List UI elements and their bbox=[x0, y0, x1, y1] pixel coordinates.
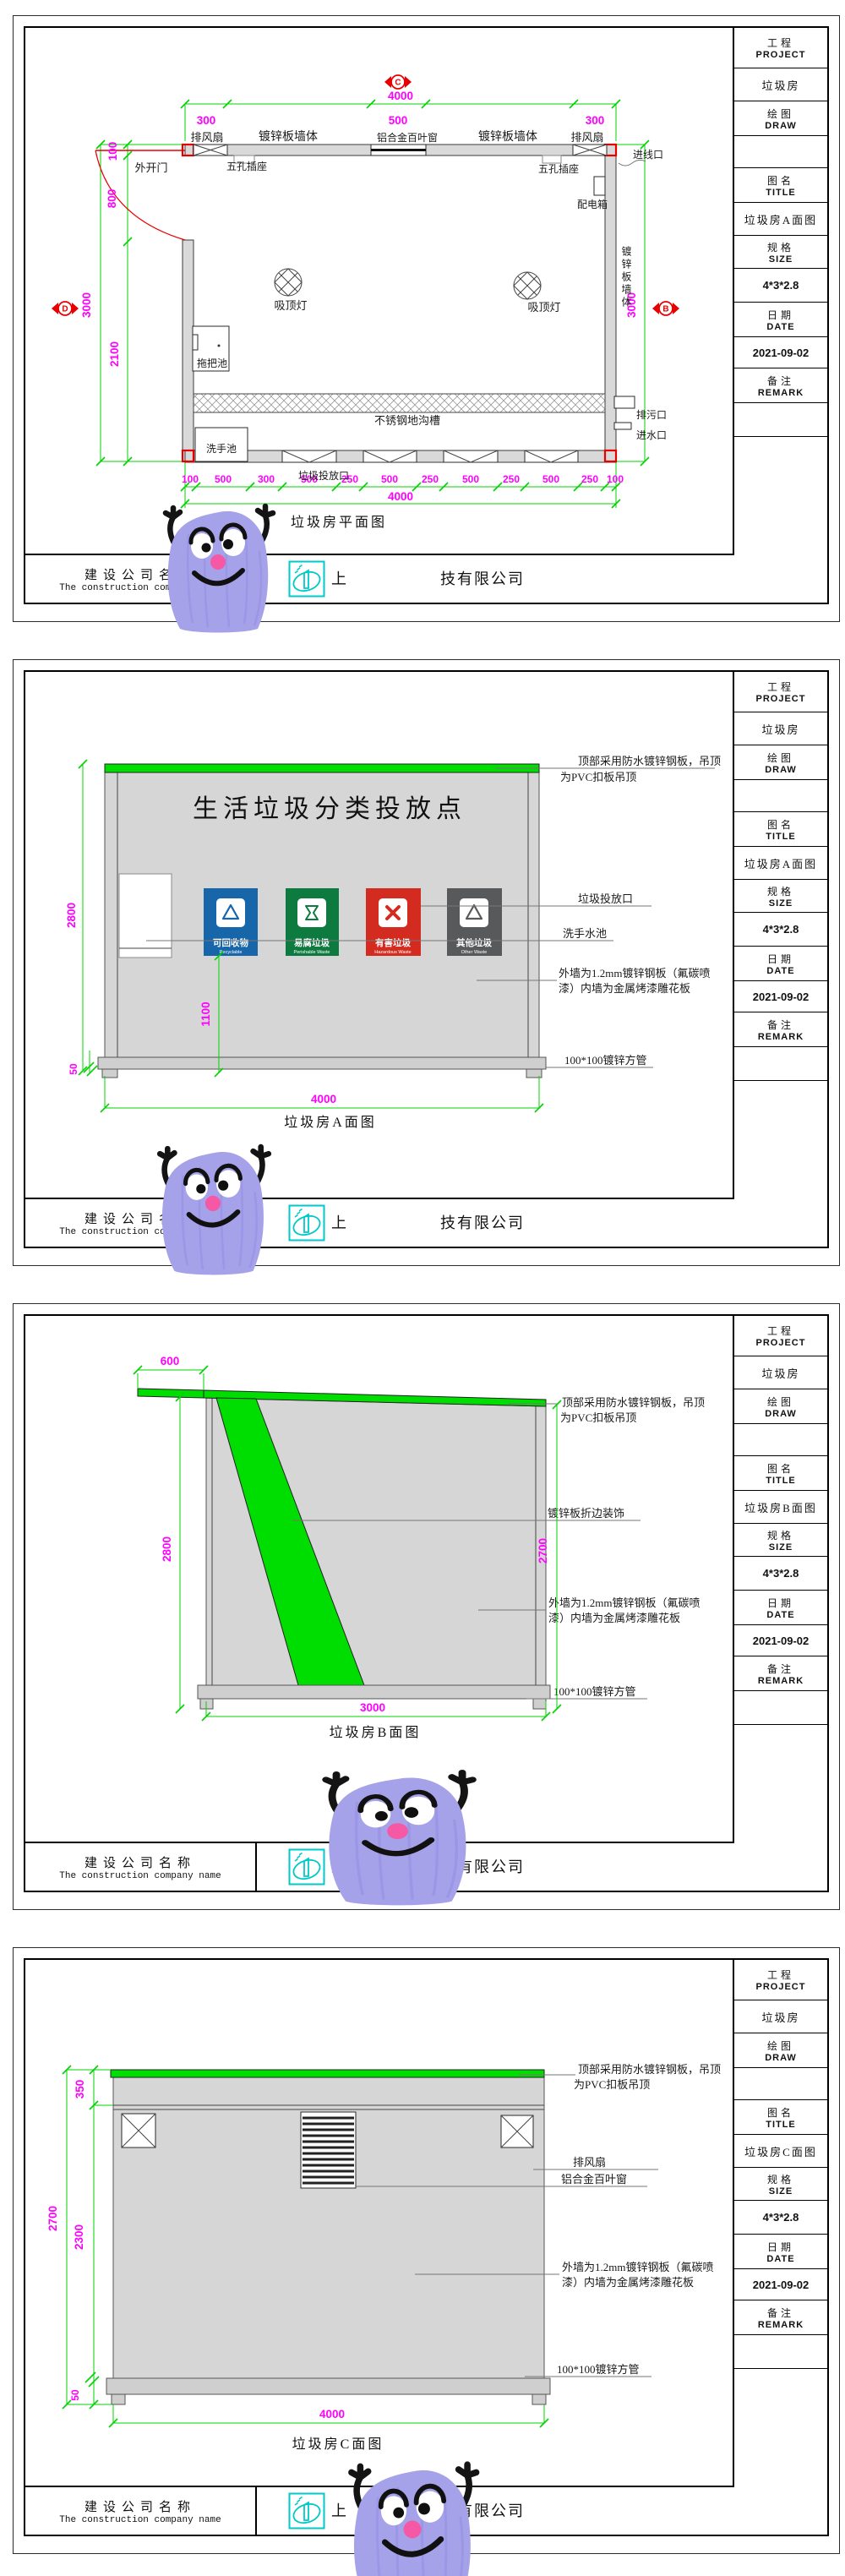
svg-text:配电箱: 配电箱 bbox=[577, 198, 608, 210]
svg-text:拖把池: 拖把池 bbox=[197, 357, 227, 369]
bin-hazardous: 有害垃圾 Hazardous Waste bbox=[366, 888, 421, 956]
ceiling-lamp-icon bbox=[275, 269, 541, 299]
svg-text:五孔插座: 五孔插座 bbox=[538, 162, 579, 175]
axis-marker-b: B bbox=[652, 302, 679, 315]
sheet-2-elevation-a: 工程PROJECT 垃圾房 绘图DRAW 图名TITLE 垃圾房A面图 规格SI… bbox=[13, 659, 840, 1266]
plan-drawing: C D B 4000 300 500 300 100 800 2100 3000… bbox=[14, 16, 839, 621]
louver-window-icon bbox=[301, 2112, 356, 2188]
svg-text:D: D bbox=[62, 305, 68, 314]
svg-text:漆）内墙为金属烤漆雕花板: 漆）内墙为金属烤漆雕花板 bbox=[562, 2276, 694, 2289]
svg-text:顶部采用防水镀锌钢板，吊顶: 顶部采用防水镀锌钢板，吊顶 bbox=[578, 755, 721, 767]
svg-text:不锈钢地沟槽: 不锈钢地沟槽 bbox=[374, 414, 440, 427]
svg-text:4000: 4000 bbox=[319, 2408, 345, 2420]
mascot-sticker bbox=[336, 2458, 488, 2576]
svg-text:顶部采用防水镀锌钢板，吊顶: 顶部采用防水镀锌钢板，吊顶 bbox=[562, 1396, 705, 1409]
svg-text:漆）内墙为金属烤漆雕花板: 漆）内墙为金属烤漆雕花板 bbox=[548, 1612, 680, 1624]
svg-text:3000: 3000 bbox=[360, 1701, 385, 1714]
svg-text:Hazardous Waste: Hazardous Waste bbox=[374, 950, 412, 955]
annotations: 顶部采用防水镀锌钢板，吊顶 为PVC扣板吊顶 排风扇 铝合金百叶窗 外墙为1.2… bbox=[557, 2063, 721, 2376]
svg-text:600: 600 bbox=[161, 1355, 180, 1367]
svg-text:2700: 2700 bbox=[537, 1538, 549, 1564]
sheet-1-plan: 工程PROJECT 垃圾房 绘图DRAW 图名TITLE 垃圾房A面图 规格SI… bbox=[13, 15, 840, 622]
annotations: 顶部采用防水镀锌钢板，吊顶 为PVC扣板吊顶 镀锌板折边装饰 外墙为1.2mm镀… bbox=[548, 1396, 705, 1698]
svg-text:C: C bbox=[395, 79, 401, 88]
svg-text:其他垃圾: 其他垃圾 bbox=[456, 937, 492, 948]
svg-text:2800: 2800 bbox=[161, 1536, 173, 1562]
svg-text:1100: 1100 bbox=[199, 1001, 212, 1026]
base-strip bbox=[98, 1057, 546, 1069]
svg-text:铝合金百叶窗: 铝合金百叶窗 bbox=[561, 2173, 627, 2186]
drawing-caption: 垃圾房B面图 bbox=[330, 1725, 422, 1740]
floor-trench bbox=[194, 394, 605, 412]
svg-text:顶部采用防水镀锌钢板，吊顶: 顶部采用防水镀锌钢板，吊顶 bbox=[578, 2063, 721, 2076]
svg-text:800: 800 bbox=[106, 189, 118, 209]
axis-marker-d: D bbox=[52, 302, 79, 315]
svg-text:为PVC扣板吊顶: 为PVC扣板吊顶 bbox=[560, 771, 636, 783]
svg-text:排风扇: 排风扇 bbox=[190, 131, 223, 144]
svg-text:3000: 3000 bbox=[80, 292, 93, 318]
drawing-caption: 垃圾房C面图 bbox=[292, 2437, 384, 2452]
svg-text:250: 250 bbox=[503, 473, 520, 485]
svg-text:进线口: 进线口 bbox=[633, 149, 663, 161]
elevation-a-drawing: 生活垃圾分类投放点 可回收物 Recyclable bbox=[14, 660, 839, 1265]
svg-text:洗手水池: 洗手水池 bbox=[563, 927, 607, 940]
svg-text:五孔插座: 五孔插座 bbox=[226, 160, 267, 172]
sign-text: 生活垃圾分类投放点 bbox=[193, 795, 466, 823]
svg-text:4000: 4000 bbox=[388, 490, 413, 503]
svg-text:500: 500 bbox=[542, 473, 559, 485]
svg-text:2300: 2300 bbox=[73, 2224, 85, 2250]
drain-symbols bbox=[614, 396, 635, 429]
svg-text:350: 350 bbox=[74, 2080, 86, 2099]
svg-text:300: 300 bbox=[586, 114, 605, 127]
svg-text:500: 500 bbox=[381, 473, 398, 485]
svg-text:500: 500 bbox=[462, 473, 479, 485]
sink-box bbox=[119, 874, 172, 958]
drawing-caption: 垃圾房A面图 bbox=[284, 1115, 377, 1130]
svg-text:2700: 2700 bbox=[46, 2206, 59, 2231]
svg-text:100*100镀锌方管: 100*100镀锌方管 bbox=[553, 1685, 636, 1698]
annotations: 顶部采用防水镀锌钢板，吊顶 为PVC扣板吊顶 垃圾投放口 洗手水池 外墙为1.2… bbox=[559, 755, 721, 1067]
drawing-set-page: 工程PROJECT 垃圾房 绘图DRAW 图名TITLE 垃圾房A面图 规格SI… bbox=[0, 0, 845, 2576]
mascot-sticker bbox=[155, 500, 281, 636]
foot-right bbox=[533, 1699, 546, 1709]
svg-text:300: 300 bbox=[258, 473, 275, 485]
drawing-caption: 垃圾房平面图 bbox=[291, 515, 387, 530]
svg-text:外墙为1.2mm镀锌钢板（氟碳喷: 外墙为1.2mm镀锌钢板（氟碳喷 bbox=[548, 1596, 700, 1609]
svg-text:吸顶灯: 吸顶灯 bbox=[274, 299, 307, 312]
svg-text:100: 100 bbox=[607, 473, 624, 485]
svg-text:为PVC扣板吊顶: 为PVC扣板吊顶 bbox=[574, 2078, 650, 2091]
axis-marker-c: C bbox=[384, 75, 412, 89]
svg-text:垃圾投放口: 垃圾投放口 bbox=[578, 892, 633, 905]
roof-strip bbox=[105, 764, 539, 772]
bin-recyclable: 可回收物 Recyclable bbox=[204, 888, 258, 956]
svg-text:外墙为1.2mm镀锌钢板（氟碳喷: 外墙为1.2mm镀锌钢板（氟碳喷 bbox=[559, 967, 710, 980]
svg-text:易腐垃圾: 易腐垃圾 bbox=[294, 937, 330, 948]
svg-text:2100: 2100 bbox=[108, 341, 121, 367]
svg-text:100*100镀锌方管: 100*100镀锌方管 bbox=[564, 1054, 647, 1067]
svg-text:排污口: 排污口 bbox=[636, 409, 667, 421]
svg-text:4000: 4000 bbox=[388, 90, 413, 102]
svg-text:排风扇: 排风扇 bbox=[570, 131, 603, 144]
right-wall-label: 镀锌板墙体 bbox=[619, 246, 634, 346]
svg-text:漆）内墙为金属烤漆雕花板: 漆）内墙为金属烤漆雕花板 bbox=[559, 982, 690, 995]
svg-text:排风扇: 排风扇 bbox=[573, 2156, 606, 2169]
bin-other: 其他垃圾 Other Waste bbox=[447, 888, 502, 956]
svg-text:铝合金百叶窗: 铝合金百叶窗 bbox=[377, 131, 438, 144]
svg-text:250: 250 bbox=[581, 473, 598, 485]
base-strip bbox=[106, 2378, 550, 2394]
svg-text:500: 500 bbox=[389, 114, 408, 127]
roof-strip bbox=[111, 2070, 544, 2077]
svg-text:50: 50 bbox=[68, 1063, 79, 1075]
svg-text:有害垃圾: 有害垃圾 bbox=[375, 937, 411, 948]
svg-text:镀锌板墙体: 镀锌板墙体 bbox=[259, 129, 318, 144]
mascot-sticker bbox=[149, 1141, 277, 1278]
bin-perishable: 易腐垃圾 Perishable Waste bbox=[286, 888, 339, 956]
svg-text:B: B bbox=[662, 305, 668, 314]
svg-text:洗手池: 洗手池 bbox=[206, 443, 237, 455]
socket-symbols bbox=[234, 156, 605, 195]
svg-text:100: 100 bbox=[106, 142, 119, 161]
svg-text:2800: 2800 bbox=[65, 903, 78, 928]
svg-text:外墙为1.2mm镀锌钢板（氟碳喷: 外墙为1.2mm镀锌钢板（氟碳喷 bbox=[562, 2261, 713, 2273]
svg-text:Perishable Waste: Perishable Waste bbox=[294, 950, 330, 955]
svg-text:50: 50 bbox=[69, 2389, 81, 2401]
svg-text:250: 250 bbox=[422, 473, 439, 485]
svg-text:300: 300 bbox=[197, 114, 216, 127]
foot-right bbox=[532, 2394, 546, 2404]
svg-text:Other Waste: Other Waste bbox=[461, 950, 488, 955]
svg-text:进水口: 进水口 bbox=[636, 429, 667, 441]
inlet-leader bbox=[619, 160, 646, 166]
svg-text:可回收物: 可回收物 bbox=[213, 937, 248, 948]
canopy bbox=[138, 1389, 204, 1398]
svg-text:镀锌板折边装饰: 镀锌板折边装饰 bbox=[548, 1507, 624, 1520]
svg-text:外开门: 外开门 bbox=[134, 161, 167, 174]
svg-text:500: 500 bbox=[215, 473, 232, 485]
louver-window-icon bbox=[371, 145, 426, 156]
svg-text:为PVC扣板吊顶: 为PVC扣板吊顶 bbox=[560, 1411, 636, 1424]
svg-text:4000: 4000 bbox=[311, 1093, 336, 1105]
svg-text:100*100镀锌方管: 100*100镀锌方管 bbox=[557, 2363, 640, 2376]
dim-ticks bbox=[96, 100, 649, 508]
foot-left bbox=[112, 2394, 125, 2404]
svg-text:吸顶灯: 吸顶灯 bbox=[527, 301, 560, 314]
svg-text:垃圾投放口: 垃圾投放口 bbox=[298, 469, 349, 482]
mascot-sticker bbox=[311, 1766, 484, 1908]
base-strip bbox=[198, 1685, 550, 1699]
svg-text:镀锌板墙体: 镀锌板墙体 bbox=[478, 129, 537, 144]
svg-text:100: 100 bbox=[182, 473, 199, 485]
